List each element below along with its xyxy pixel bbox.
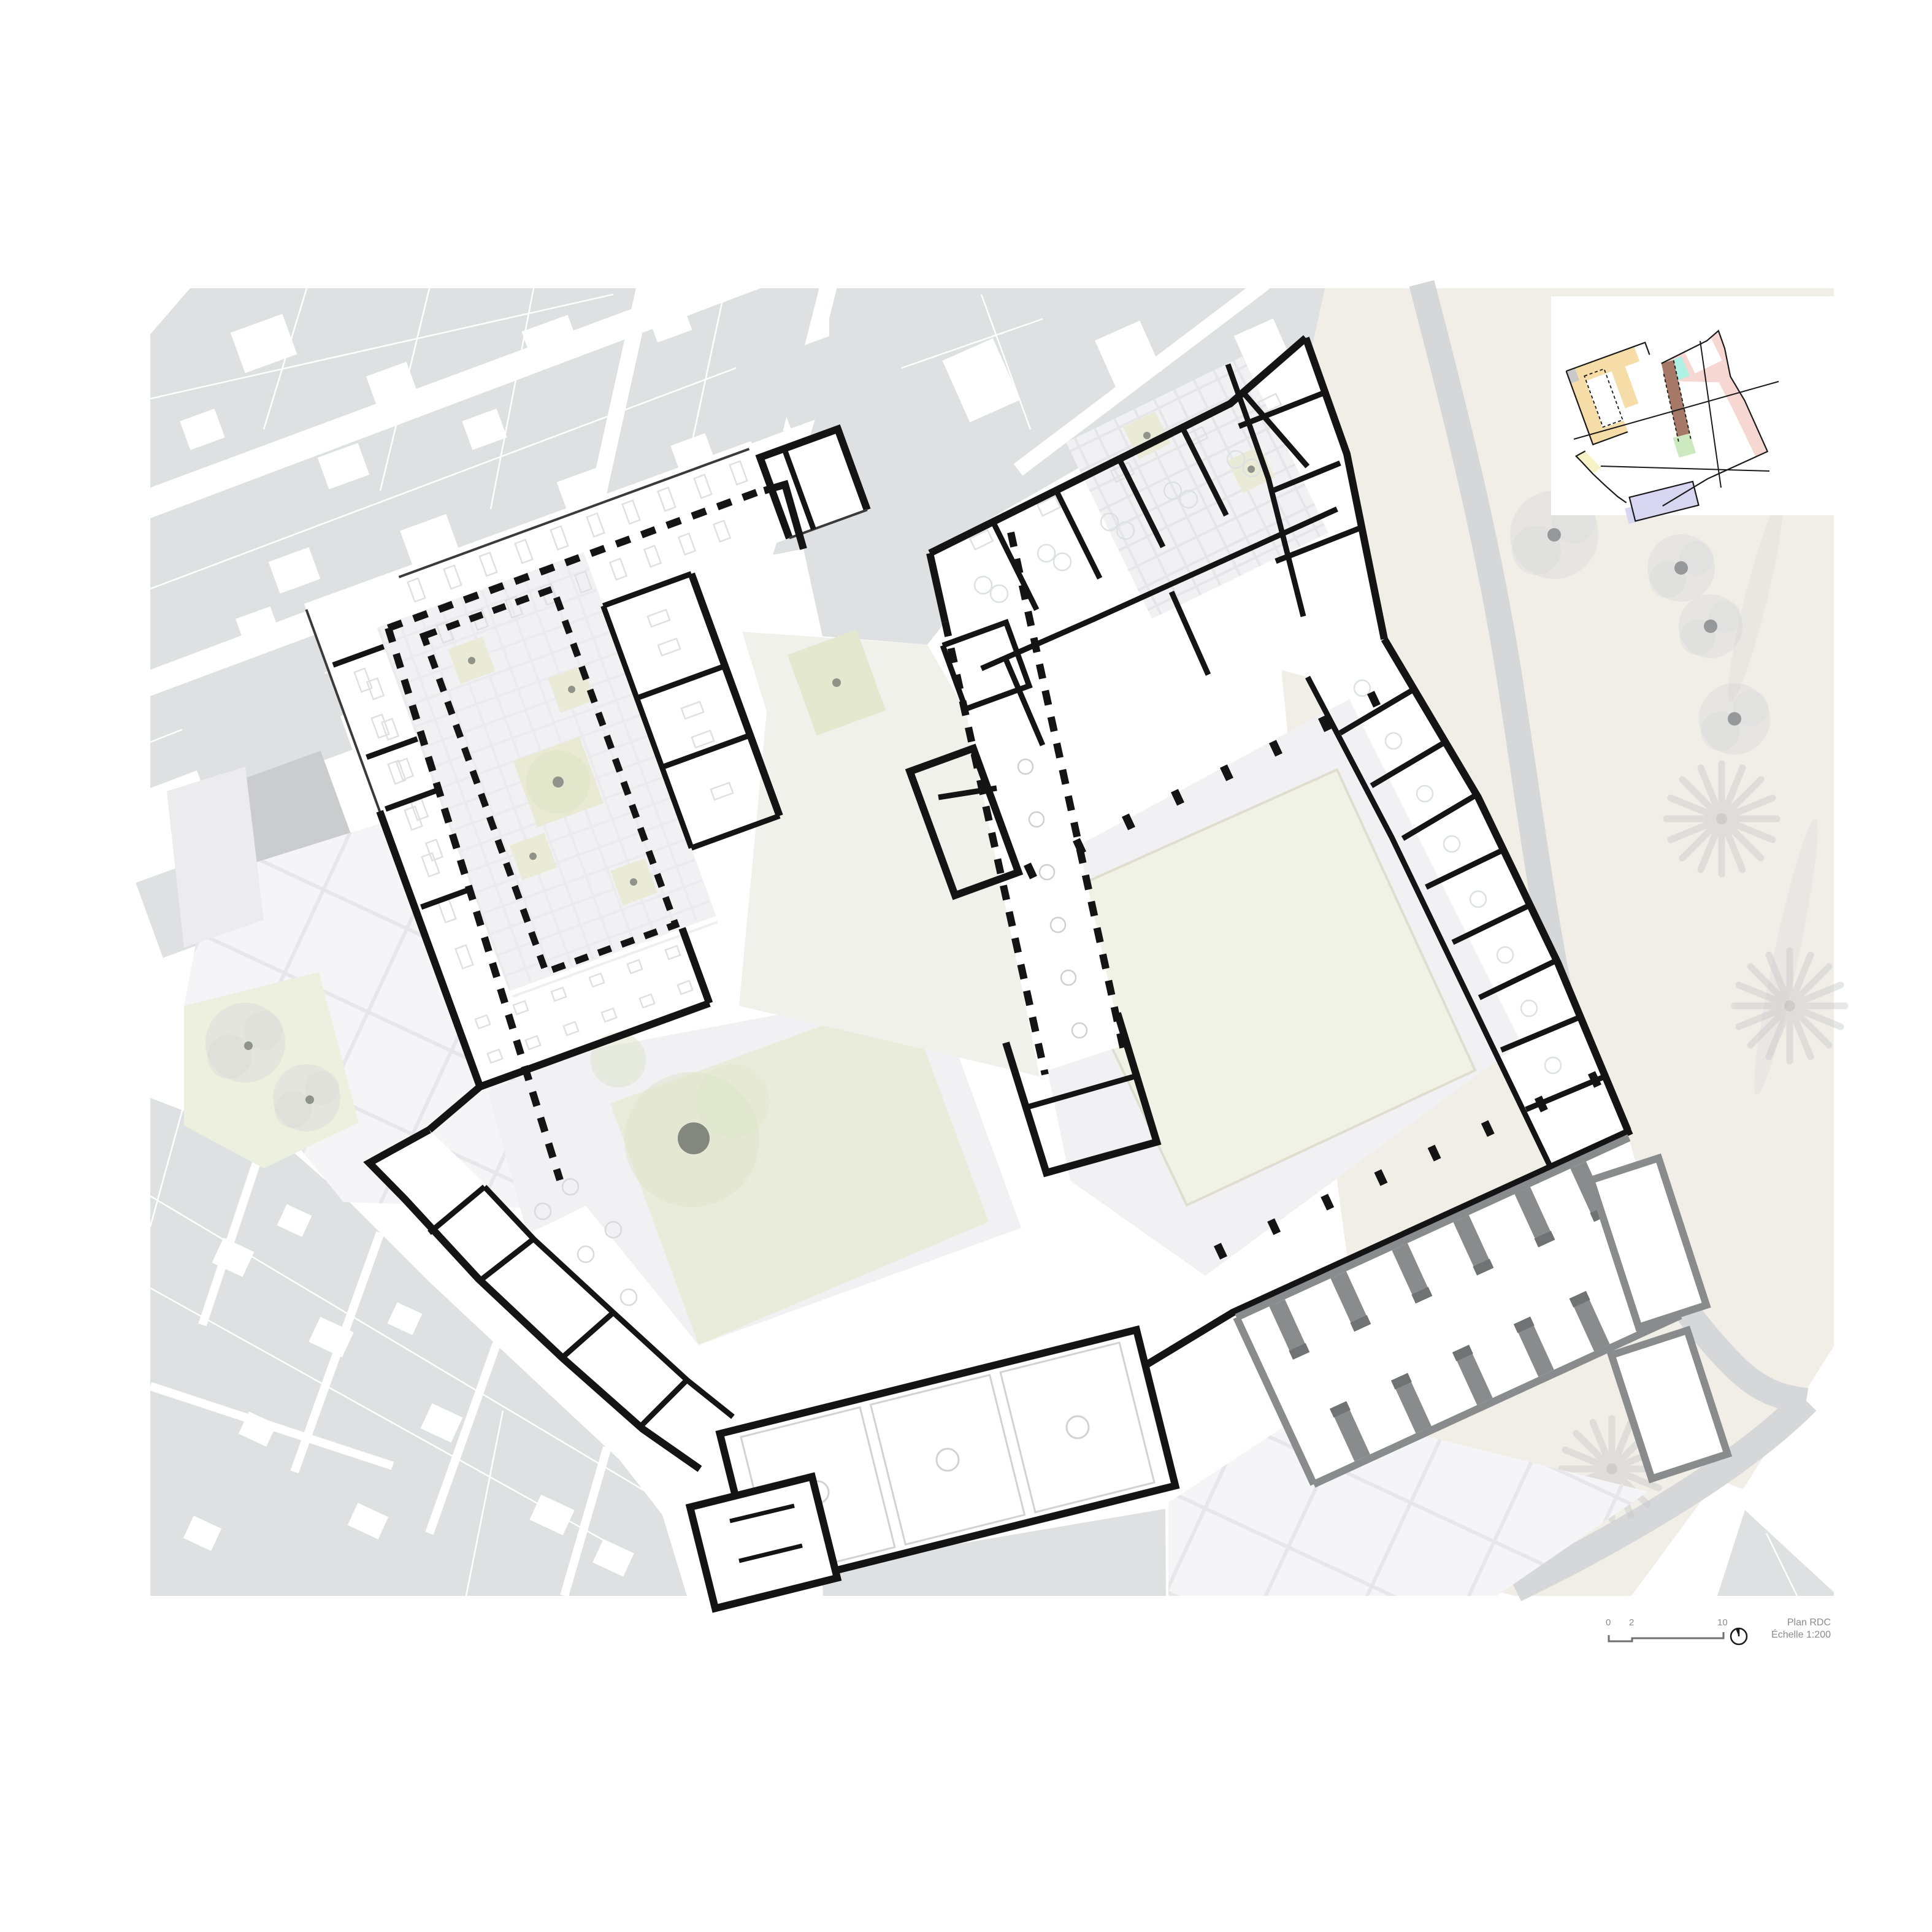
- svg-text:10: 10: [1717, 1617, 1728, 1628]
- svg-text:2: 2: [1629, 1617, 1634, 1628]
- svg-text:Échelle 1:200: Échelle 1:200: [1771, 1628, 1831, 1640]
- svg-text:0: 0: [1606, 1617, 1611, 1628]
- svg-text:Plan RDC: Plan RDC: [1787, 1617, 1831, 1628]
